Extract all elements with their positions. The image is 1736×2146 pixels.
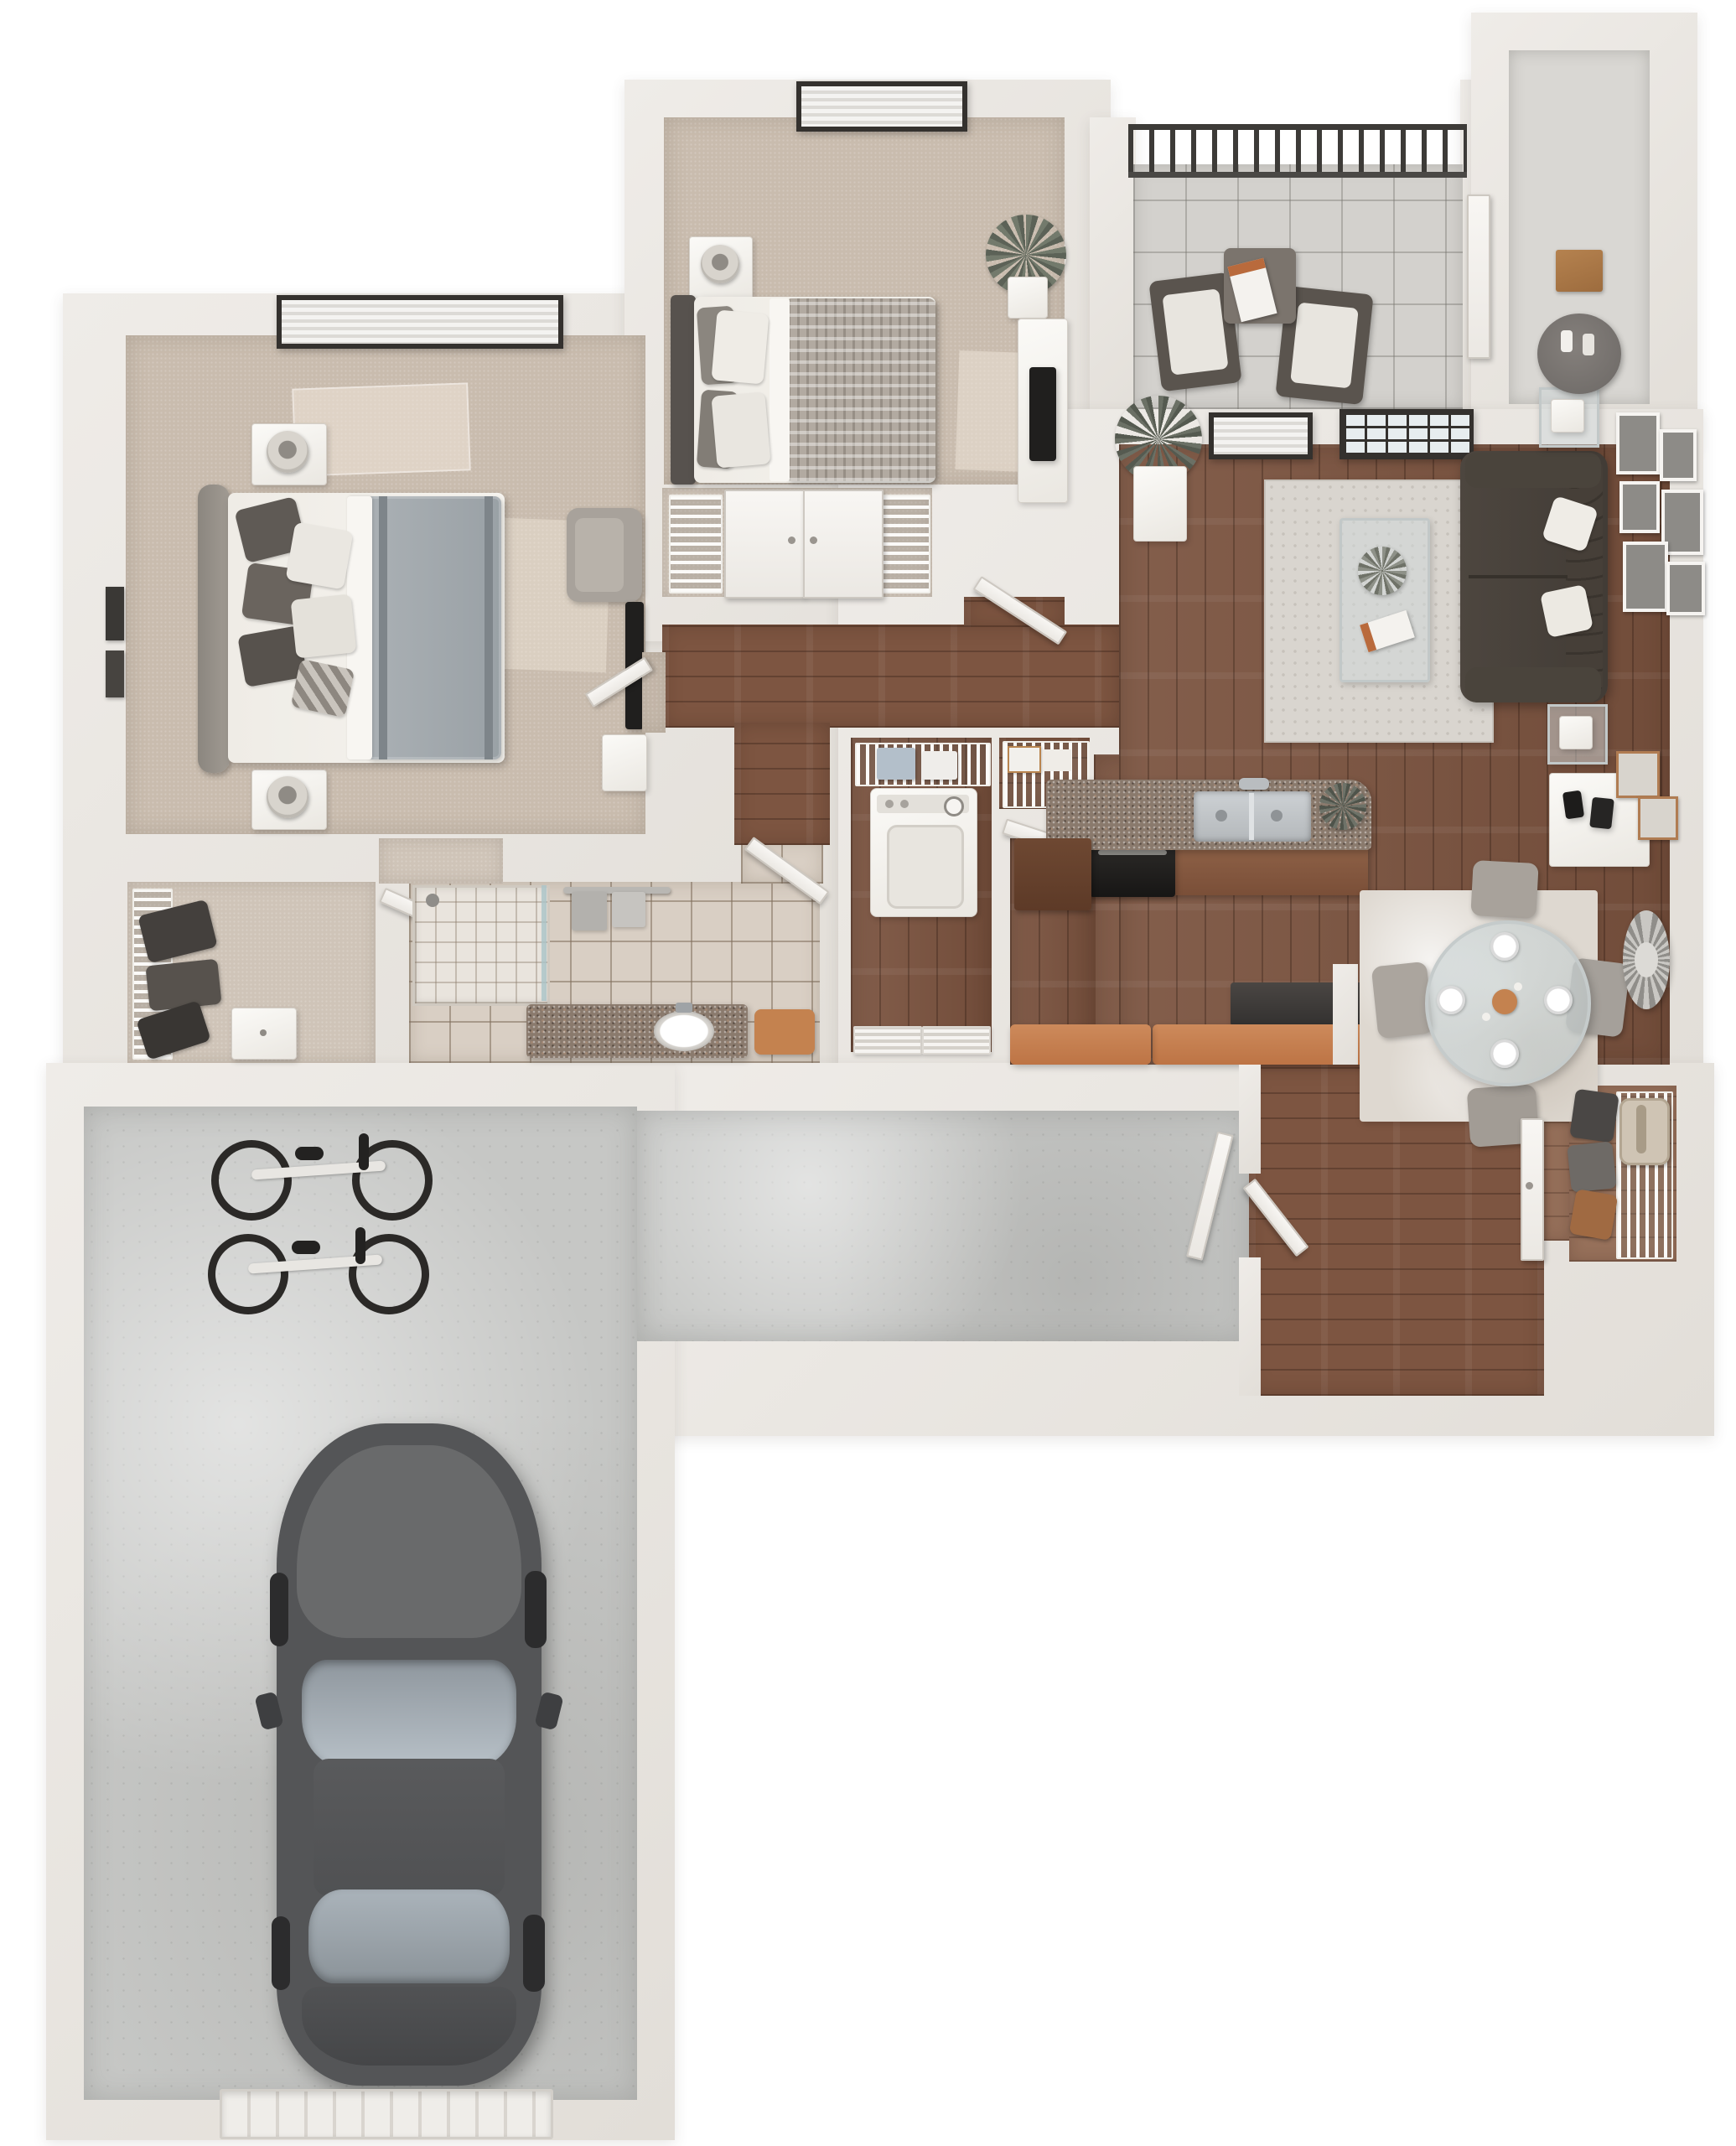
garage-door <box>220 2089 553 2139</box>
kitchen-upper-cabinet <box>1014 838 1091 910</box>
bedroom2-lamp <box>701 245 739 283</box>
master-closet-clothes-2 <box>145 959 221 1012</box>
bedroom2-window <box>796 81 967 132</box>
balcony-chair-2-cushion <box>1290 302 1359 388</box>
living-coffee-table <box>1340 518 1430 682</box>
bathroom-orange-mat <box>754 1009 815 1055</box>
bathroom-vanity <box>526 1004 748 1058</box>
floor-bath-alcove <box>734 723 830 845</box>
laundry-linens-blue <box>877 748 915 780</box>
coffee-table-plant <box>1358 547 1407 595</box>
bicycle-1-seat <box>295 1147 324 1160</box>
car-wheel-front-left <box>270 1573 288 1646</box>
bedroom2-pillow-2 <box>711 391 770 468</box>
bedroom2-plant-pot <box>1008 277 1048 319</box>
living-speaker-1 <box>1562 790 1584 820</box>
car-wheel-rear-left <box>272 1916 290 1990</box>
master-window <box>277 295 563 349</box>
bedroom2-sheet-fold <box>770 298 790 481</box>
bedroom2-closet-door-left <box>724 490 805 599</box>
coat-closet-clothes-2 <box>1567 1141 1617 1192</box>
bedroom2-closet-rack-left <box>669 495 723 594</box>
kitchen-sink-drain-right <box>1271 810 1283 822</box>
kitchen-counter-plant <box>1319 783 1366 830</box>
car-roof <box>314 1759 505 1896</box>
master-closet-doorway <box>379 838 503 884</box>
kitchen-faucet <box>1239 778 1269 790</box>
entry-wall-stub-north <box>1239 1065 1261 1174</box>
coat-closet-clothes-3 <box>1569 1189 1619 1241</box>
living-french-door <box>1340 409 1474 459</box>
living-end-lamp-top <box>1551 399 1584 433</box>
coat-closet-door-knob <box>1526 1182 1533 1190</box>
master-lamp-top <box>267 431 308 473</box>
gallery-frame-6 <box>1666 562 1705 615</box>
living-speaker-2 <box>1589 797 1614 830</box>
dining-plate-east <box>1544 986 1573 1014</box>
sofa-pillow-2 <box>1540 584 1593 638</box>
bedroom2-tv <box>1029 367 1056 461</box>
bathroom-shower-head <box>426 894 439 907</box>
master-media-shelf <box>602 734 647 791</box>
master-duvet-band <box>379 496 387 759</box>
pantry-box-2 <box>1043 749 1071 771</box>
laundry-dryer-knob1 <box>885 800 894 808</box>
gallery-frame-1 <box>1616 412 1660 474</box>
car <box>277 1423 542 2086</box>
storage-table-item-2 <box>1583 334 1594 355</box>
living-sofa-seat-seam <box>1469 575 1568 578</box>
bathroom-towel-2 <box>612 892 645 927</box>
living-sofa-back <box>1566 459 1603 694</box>
master-armchair-cushion <box>575 518 624 592</box>
master-duvet-band2 <box>485 496 493 759</box>
coat-closet-clothes-1 <box>1569 1089 1619 1143</box>
copper-frame-1 <box>1616 751 1660 798</box>
master-duvet <box>369 496 501 759</box>
pantry-box-1 <box>1008 746 1041 773</box>
coat-closet-door-leaf <box>1521 1118 1544 1261</box>
car-hood-highlight <box>297 1445 521 1638</box>
dining-candle-1 <box>1514 982 1522 991</box>
balcony-chair-1-cushion <box>1162 288 1228 376</box>
master-headboard <box>198 485 230 773</box>
master-wall-art-1 <box>106 587 124 640</box>
bicycle-2-seat <box>292 1241 320 1254</box>
gallery-frame-5 <box>1623 542 1668 612</box>
dining-plate-south <box>1490 1039 1519 1068</box>
floor-coat-closet-doorway <box>1544 1115 1569 1241</box>
laundry-dryer-door <box>887 825 964 909</box>
bicycle-2-rear-wheel <box>208 1234 288 1314</box>
bedroom2-headboard <box>671 295 696 485</box>
dining-chair-top <box>1470 860 1538 919</box>
bathroom-shower-glass <box>542 885 547 1001</box>
bicycle-1-rear-wheel <box>211 1140 292 1221</box>
kitchen-sink-divider <box>1249 793 1254 840</box>
car-rear-window <box>308 1889 510 1983</box>
entry-wall-stub-south <box>1239 1257 1261 1396</box>
bedroom2-closet-rack-right <box>878 495 930 594</box>
laundry-linens-white <box>922 751 957 780</box>
balcony-railing <box>1128 124 1467 178</box>
hallway-palm-planter <box>1133 466 1187 542</box>
kitchen-half-wall <box>1333 964 1358 1065</box>
bedroom2-pillow-1 <box>711 309 769 384</box>
living-window <box>1209 412 1313 459</box>
dining-centerpiece <box>1492 989 1517 1014</box>
storage-round-table <box>1537 314 1621 394</box>
bathroom-towel-1 <box>572 892 607 930</box>
floor-garage-corridor <box>637 1111 1249 1341</box>
coat-closet-backpack-strap <box>1636 1105 1646 1153</box>
bedroom2-duvet-patterned <box>788 298 935 481</box>
copper-frame-2 <box>1638 796 1678 840</box>
master-pillow-light-1 <box>285 521 353 589</box>
bedroom2-closet-knob-right <box>810 536 817 544</box>
bathroom-sink <box>654 1011 714 1051</box>
bedroom2-closet-door-right <box>803 490 884 599</box>
bedroom2-closet-knob-left <box>788 536 795 544</box>
gallery-frame-2 <box>1660 429 1697 481</box>
kitchen-sink-drain-left <box>1215 810 1227 822</box>
laundry-bifold-left <box>853 1026 922 1055</box>
laundry-bifold-right <box>922 1026 991 1055</box>
storage-box-2 <box>1556 250 1603 292</box>
master-closet-dresser-knob <box>260 1029 267 1036</box>
dining-plate-west <box>1437 986 1465 1014</box>
dining-sunburst-center <box>1635 942 1658 977</box>
laundry-dryer-knob2 <box>900 800 909 808</box>
dining-candle-2 <box>1482 1013 1490 1021</box>
bicycle-2-handlebar <box>355 1227 365 1264</box>
bicycle-1-handlebar <box>359 1133 369 1170</box>
master-wall-art-2 <box>106 651 124 697</box>
car-wheel-rear-right <box>523 1915 545 1992</box>
car-wheel-front-right <box>525 1571 547 1648</box>
living-end-lamp-bottom <box>1559 716 1593 749</box>
laundry-dryer-dial <box>944 796 964 816</box>
living-sofa-arm-bottom <box>1465 667 1601 702</box>
kitchen-breakfast-bar-west <box>1010 1024 1151 1065</box>
storage-door <box>1467 194 1490 359</box>
kitchen-range-handle <box>1098 850 1167 855</box>
dining-plate-north <box>1490 932 1519 961</box>
gallery-frame-3 <box>1619 481 1660 533</box>
living-sofa-arm-top <box>1465 453 1601 488</box>
bathroom-faucet <box>676 1003 692 1013</box>
car-windshield <box>302 1660 516 1767</box>
master-lamp-bottom <box>267 776 308 818</box>
master-pillow-light-2 <box>291 594 357 658</box>
floor-plan <box>0 0 1736 2146</box>
car-trunk <box>302 1987 516 2066</box>
storage-table-item-1 <box>1561 330 1573 352</box>
